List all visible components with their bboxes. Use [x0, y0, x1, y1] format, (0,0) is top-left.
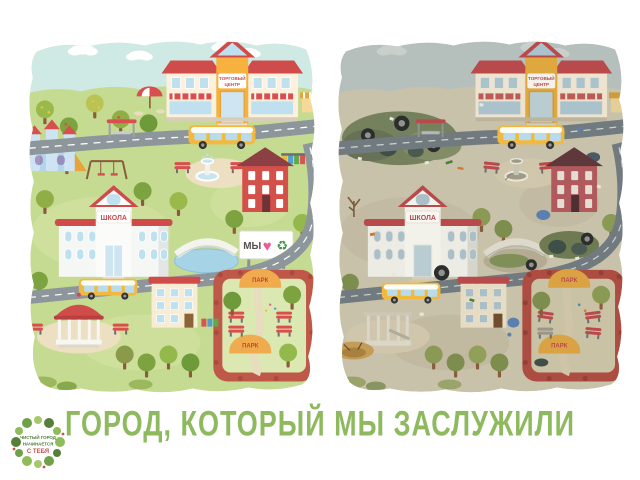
- park-gate-top-dirty-label: ПАРК: [561, 278, 578, 284]
- dirt-pile: [334, 342, 374, 360]
- park-gate-inner-label: ПАРК: [242, 344, 259, 350]
- clean-city-map: ТОРГОВЫЙ ЦЕНТР: [21, 33, 320, 396]
- mall-sign-line2: ЦЕНТР: [225, 82, 241, 87]
- mall-sign-dirty-line1: ТОРГОВЫЙ: [528, 74, 554, 81]
- logo-line2: НАЧИНАЕТСЯ: [23, 442, 54, 447]
- logo-line3: С ТЕБЯ: [27, 449, 49, 455]
- slide-title: ГОРОД, КОТОРЫЙ МЫ ЗАСЛУЖИЛИ: [65, 404, 575, 445]
- logo-line1: ЧИСТЫЙ ГОРОД: [20, 435, 57, 440]
- heart-icon: ♥: [263, 238, 272, 255]
- park: ПАРК ПАРК: [213, 269, 315, 382]
- street-kiosk: [300, 92, 319, 112]
- school-sign: ШКОЛА: [100, 215, 126, 222]
- polluted-city-map: ТОРГОВЫЙ ЦЕНТР: [330, 33, 629, 396]
- clean-city-logo: ЧИСТЫЙ ГОРОД НАЧИНАЕТСЯ С ТЕБЯ: [6, 412, 70, 474]
- mall-sign-dirty-line2: ЦЕНТР: [534, 82, 550, 87]
- school-sign-dirty: ШКОЛА: [409, 215, 435, 222]
- park-dirty: ПАРК ПАРК: [522, 269, 624, 382]
- mall-sign-line1: ТОРГОВЫЙ: [219, 74, 245, 81]
- slide: ТОРГОВЫЙ ЦЕНТР: [0, 0, 640, 480]
- park-gate-inner-dirty-label: ПАРК: [551, 344, 568, 350]
- billboard-we-label: МЫ: [243, 241, 261, 252]
- park-gate-top-label: ПАРК: [252, 278, 269, 284]
- street-kiosk-dirty: [609, 92, 628, 112]
